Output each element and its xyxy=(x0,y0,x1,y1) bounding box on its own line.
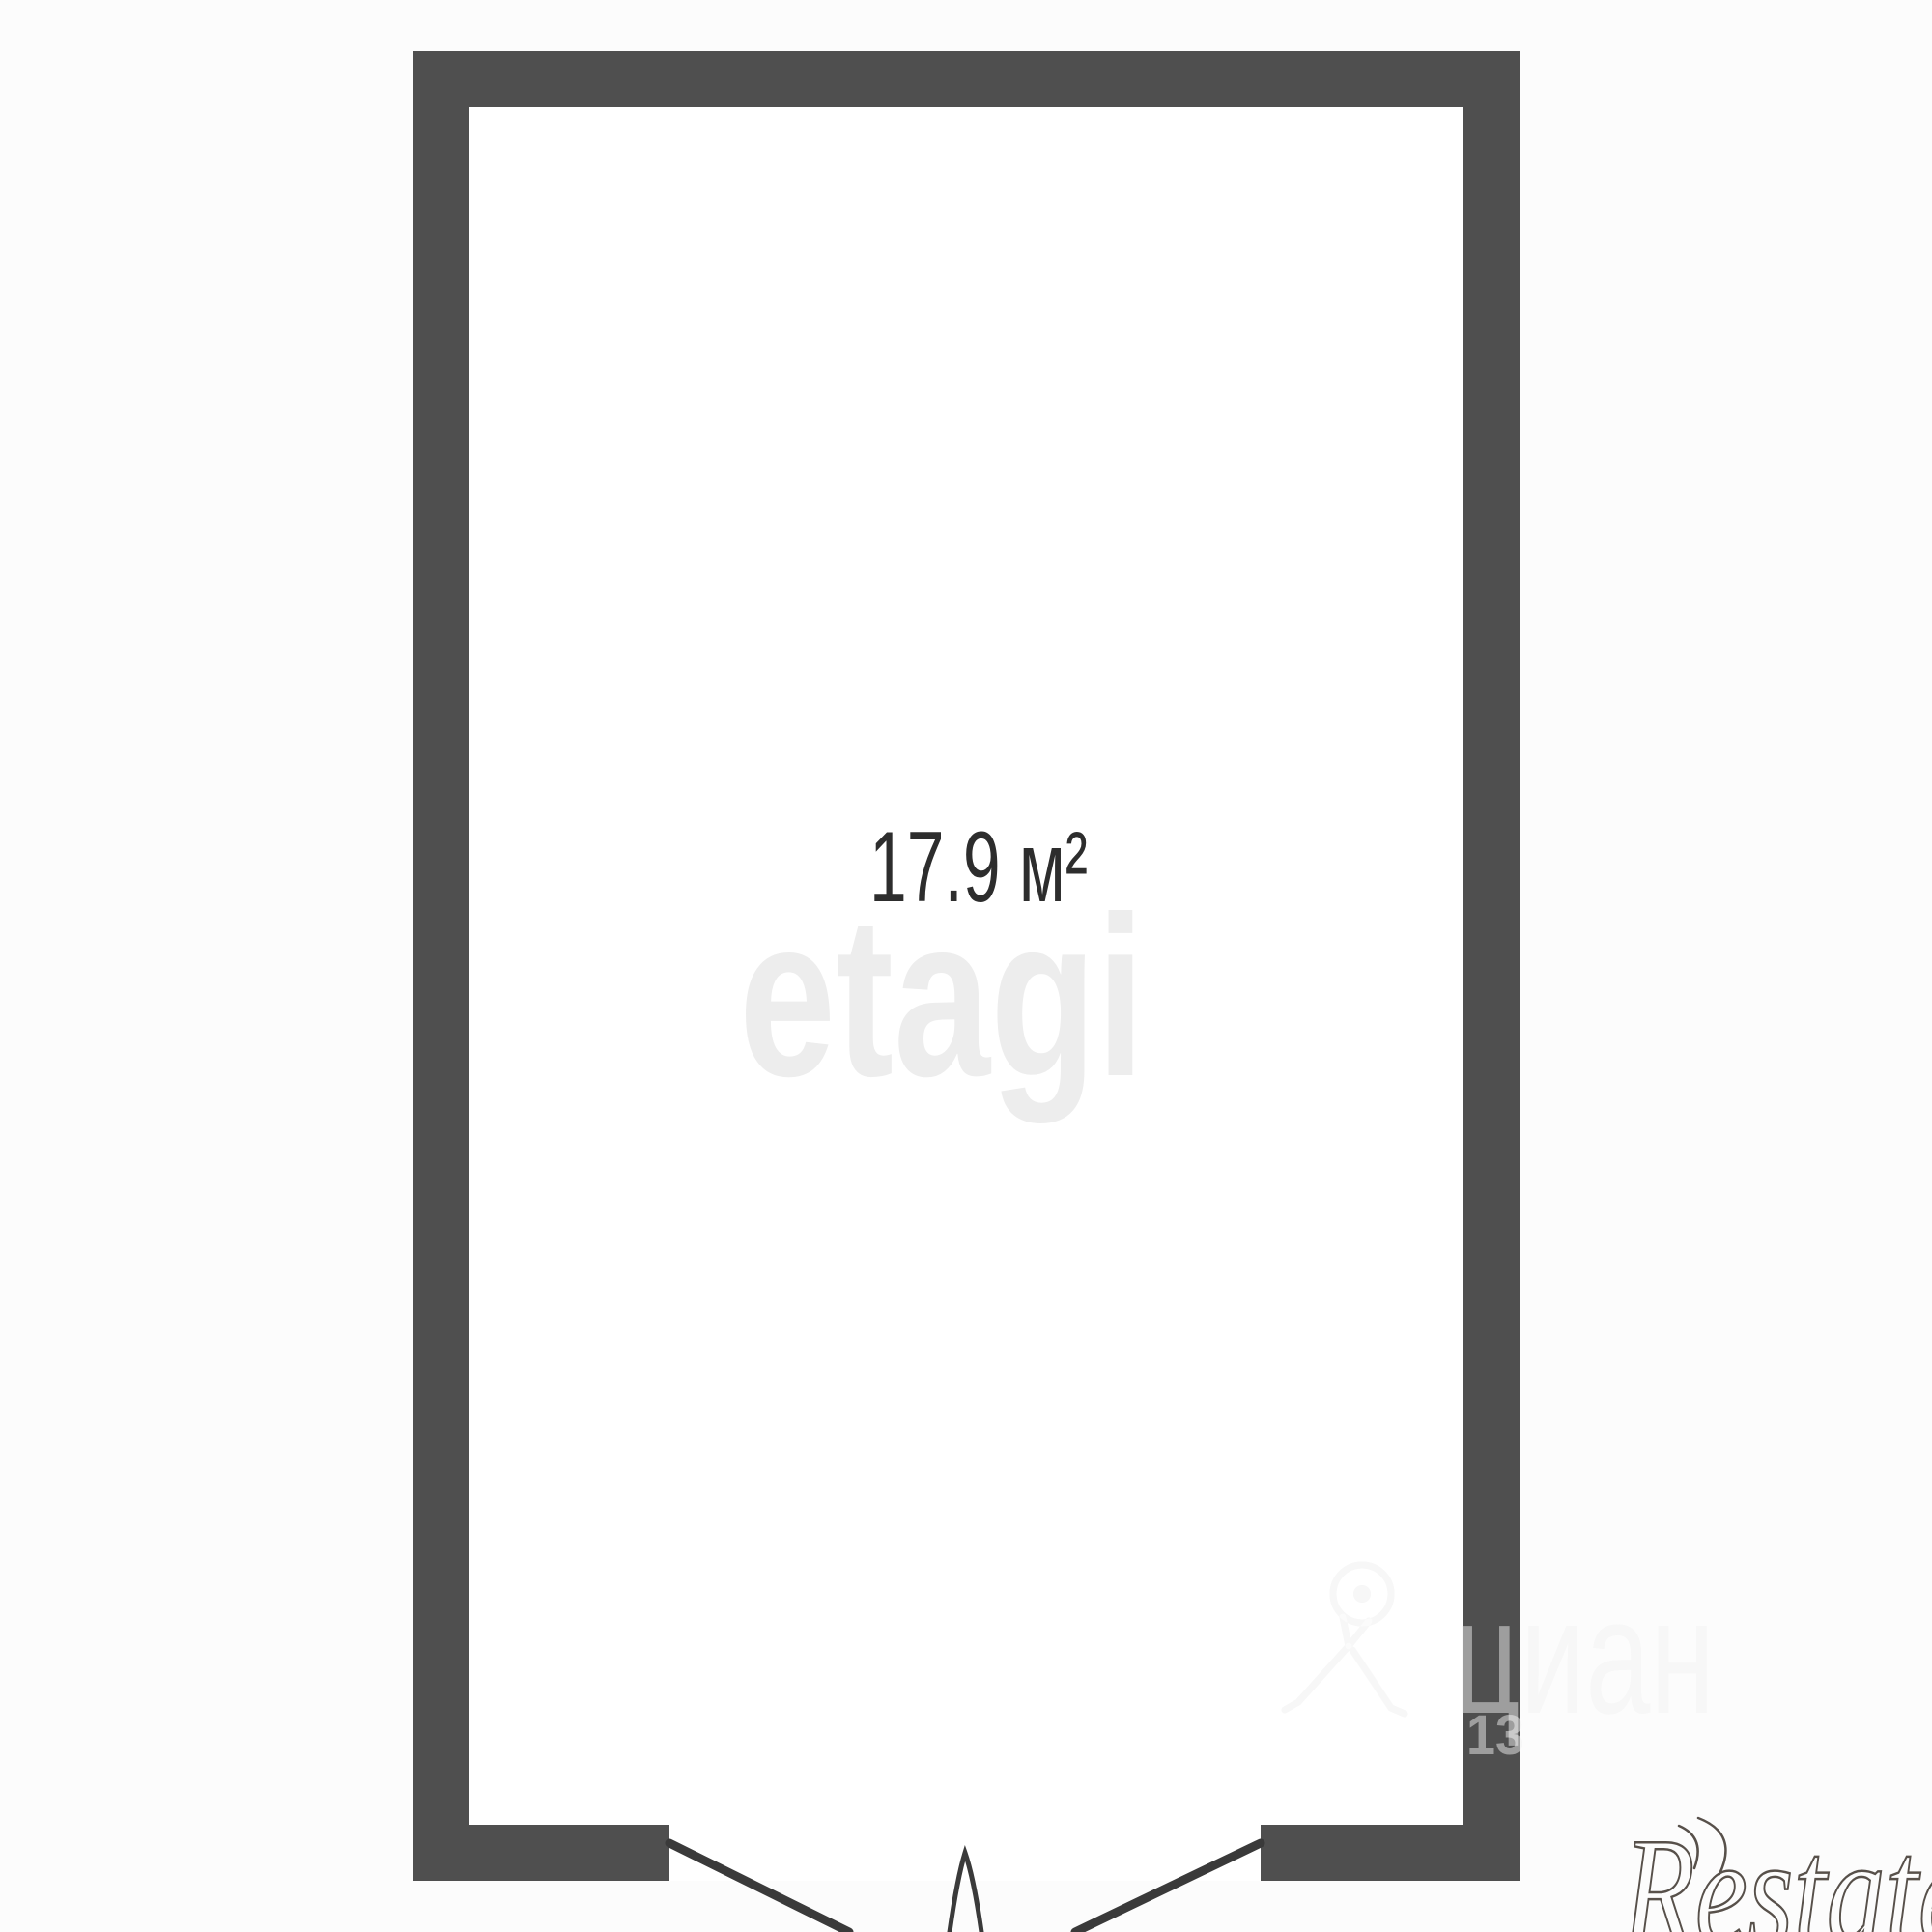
wall-bottom-right xyxy=(1261,1825,1520,1881)
pin-hole-icon xyxy=(1353,1585,1371,1603)
cian-watermark-number: 13 xyxy=(1466,1704,1524,1767)
wall-bottom-left xyxy=(413,1825,669,1881)
restate-watermark-text: Restate xyxy=(1622,1805,1932,1932)
restate-watermark: Restate xyxy=(1622,1805,1932,1932)
wall-top xyxy=(413,51,1520,107)
area-label: 17.9 м² xyxy=(869,811,1088,923)
wall-left xyxy=(413,51,469,1881)
floorplan-canvas: циан 13 etagi циан 13 17. xyxy=(0,0,1932,1932)
floorplan-svg: циан 13 etagi циан 13 17. xyxy=(0,0,1932,1932)
